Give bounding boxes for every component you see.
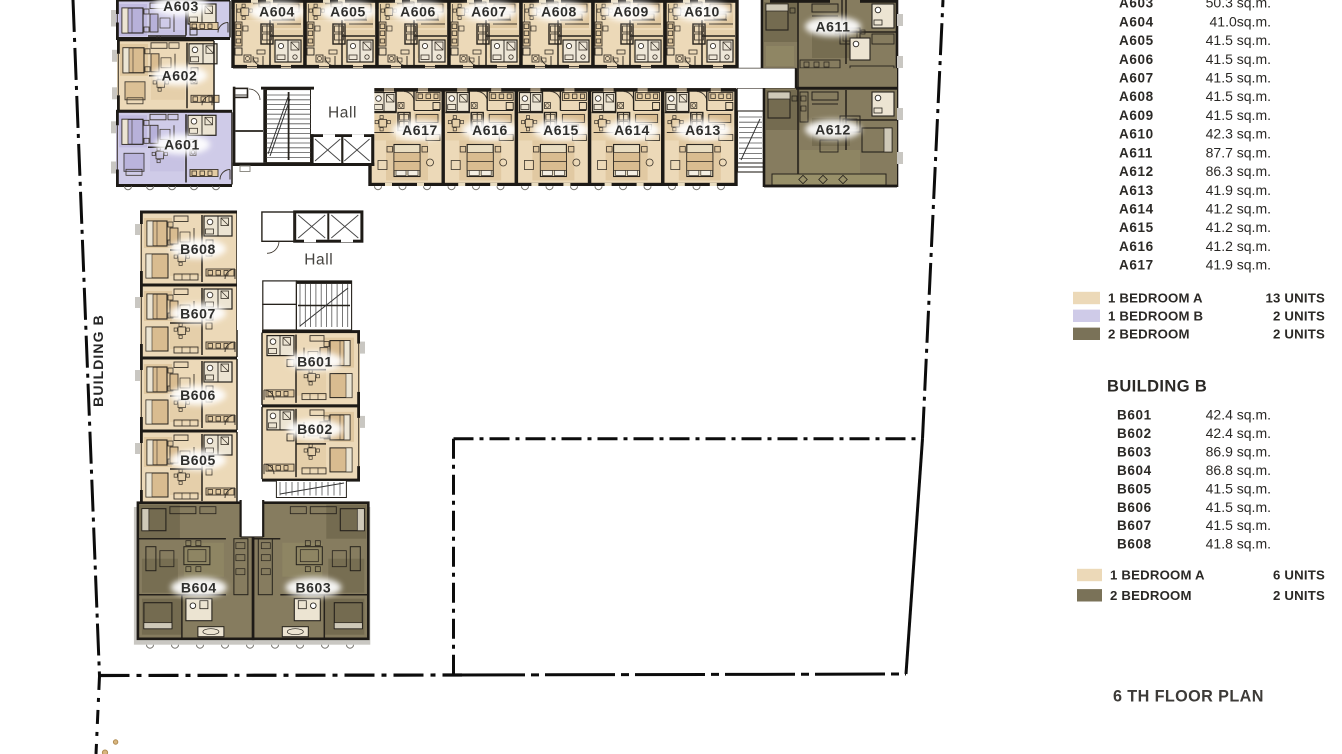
svg-text:42.3 sq.m.: 42.3 sq.m. <box>1206 126 1271 142</box>
svg-text:A606: A606 <box>400 4 436 20</box>
svg-text:41.0sq.m.: 41.0sq.m. <box>1210 13 1271 29</box>
svg-text:B603: B603 <box>1117 445 1152 460</box>
svg-text:2 UNITS: 2 UNITS <box>1273 308 1325 323</box>
svg-text:B607: B607 <box>1117 518 1152 533</box>
svg-text:A615: A615 <box>1119 220 1154 235</box>
svg-text:2 BEDROOM: 2 BEDROOM <box>1110 588 1192 603</box>
svg-text:A607: A607 <box>1119 71 1154 86</box>
svg-text:1 BEDROOM B: 1 BEDROOM B <box>1108 308 1203 323</box>
svg-text:B606: B606 <box>1117 500 1152 515</box>
svg-text:A612: A612 <box>815 122 851 138</box>
svg-text:A605: A605 <box>330 4 366 20</box>
svg-text:2 BEDROOM: 2 BEDROOM <box>1108 326 1190 341</box>
svg-text:41.5 sq.m.: 41.5 sq.m. <box>1206 107 1271 123</box>
svg-text:A610: A610 <box>1119 127 1154 142</box>
svg-text:Hall: Hall <box>304 251 333 268</box>
svg-text:B608: B608 <box>180 241 216 257</box>
svg-text:A614: A614 <box>1119 202 1154 217</box>
svg-text:41.5 sq.m.: 41.5 sq.m. <box>1206 51 1271 67</box>
svg-text:A610: A610 <box>684 4 720 20</box>
svg-text:B604: B604 <box>1117 463 1152 478</box>
svg-text:A609: A609 <box>613 4 649 20</box>
svg-text:A612: A612 <box>1119 164 1154 179</box>
svg-text:Hall: Hall <box>328 105 357 122</box>
svg-text:50.3 sq.m.: 50.3 sq.m. <box>1206 0 1271 11</box>
svg-text:A616: A616 <box>472 122 508 138</box>
svg-text:6 UNITS: 6 UNITS <box>1273 568 1325 583</box>
svg-text:A609: A609 <box>1119 108 1154 123</box>
svg-text:41.5 sq.m.: 41.5 sq.m. <box>1206 480 1271 496</box>
svg-text:B603: B603 <box>295 579 331 595</box>
svg-text:41.8 sq.m.: 41.8 sq.m. <box>1206 536 1271 552</box>
svg-text:13 UNITS: 13 UNITS <box>1266 291 1326 306</box>
svg-text:42.4 sq.m.: 42.4 sq.m. <box>1206 407 1271 423</box>
svg-text:41.5 sq.m.: 41.5 sq.m. <box>1206 88 1271 104</box>
svg-text:A613: A613 <box>1119 183 1154 198</box>
svg-text:2 UNITS: 2 UNITS <box>1273 588 1325 603</box>
svg-text:1 BEDROOM A: 1 BEDROOM A <box>1108 291 1203 306</box>
svg-text:6 TH FLOOR PLAN: 6 TH FLOOR PLAN <box>1113 688 1264 706</box>
svg-text:2 UNITS: 2 UNITS <box>1273 326 1325 341</box>
svg-text:B601: B601 <box>297 353 333 369</box>
svg-text:B605: B605 <box>1117 481 1152 496</box>
svg-text:B605: B605 <box>180 452 216 468</box>
svg-text:A611: A611 <box>1119 145 1153 160</box>
svg-text:41.9 sq.m.: 41.9 sq.m. <box>1206 182 1271 198</box>
svg-text:A604: A604 <box>259 4 295 20</box>
svg-text:41.2 sq.m.: 41.2 sq.m. <box>1206 201 1271 217</box>
svg-text:A604: A604 <box>1119 14 1154 29</box>
svg-text:41.5 sq.m.: 41.5 sq.m. <box>1206 499 1271 515</box>
svg-text:A607: A607 <box>471 4 507 20</box>
svg-text:A614: A614 <box>614 122 650 138</box>
svg-text:86.9 sq.m.: 86.9 sq.m. <box>1206 444 1271 460</box>
svg-text:B602: B602 <box>1117 426 1152 441</box>
svg-text:BUILDING B: BUILDING B <box>90 314 106 407</box>
svg-text:41.9 sq.m.: 41.9 sq.m. <box>1206 257 1271 273</box>
svg-text:B606: B606 <box>180 387 216 403</box>
svg-text:A613: A613 <box>685 122 721 138</box>
svg-text:A608: A608 <box>1119 89 1154 104</box>
svg-text:A616: A616 <box>1119 239 1154 254</box>
svg-text:A602: A602 <box>162 68 198 84</box>
svg-text:86.3 sq.m.: 86.3 sq.m. <box>1206 163 1271 179</box>
svg-text:A611: A611 <box>815 19 850 35</box>
svg-text:A617: A617 <box>402 122 438 138</box>
svg-text:A608: A608 <box>541 4 577 20</box>
svg-text:B602: B602 <box>297 421 333 437</box>
svg-text:86.8 sq.m.: 86.8 sq.m. <box>1206 462 1271 478</box>
svg-text:B601: B601 <box>1117 408 1152 423</box>
svg-text:A603: A603 <box>1119 0 1154 11</box>
svg-text:41.2 sq.m.: 41.2 sq.m. <box>1206 219 1271 235</box>
svg-text:41.5 sq.m.: 41.5 sq.m. <box>1206 32 1271 48</box>
svg-text:1 BEDROOM A: 1 BEDROOM A <box>1110 568 1205 583</box>
svg-text:41.5 sq.m.: 41.5 sq.m. <box>1206 70 1271 86</box>
svg-text:A606: A606 <box>1119 52 1154 67</box>
svg-text:BUILDING B: BUILDING B <box>1107 378 1207 396</box>
svg-text:B604: B604 <box>181 579 217 595</box>
svg-text:A603: A603 <box>163 0 199 14</box>
svg-text:87.7 sq.m.: 87.7 sq.m. <box>1206 144 1271 160</box>
svg-text:A601: A601 <box>164 137 200 153</box>
svg-text:42.4 sq.m.: 42.4 sq.m. <box>1206 425 1271 441</box>
svg-text:A617: A617 <box>1119 258 1154 273</box>
svg-text:A605: A605 <box>1119 33 1154 48</box>
svg-text:B607: B607 <box>180 305 216 321</box>
svg-text:A615: A615 <box>543 122 579 138</box>
svg-text:41.2 sq.m.: 41.2 sq.m. <box>1206 238 1271 254</box>
svg-text:B608: B608 <box>1117 537 1152 552</box>
svg-text:41.5 sq.m.: 41.5 sq.m. <box>1206 517 1271 533</box>
